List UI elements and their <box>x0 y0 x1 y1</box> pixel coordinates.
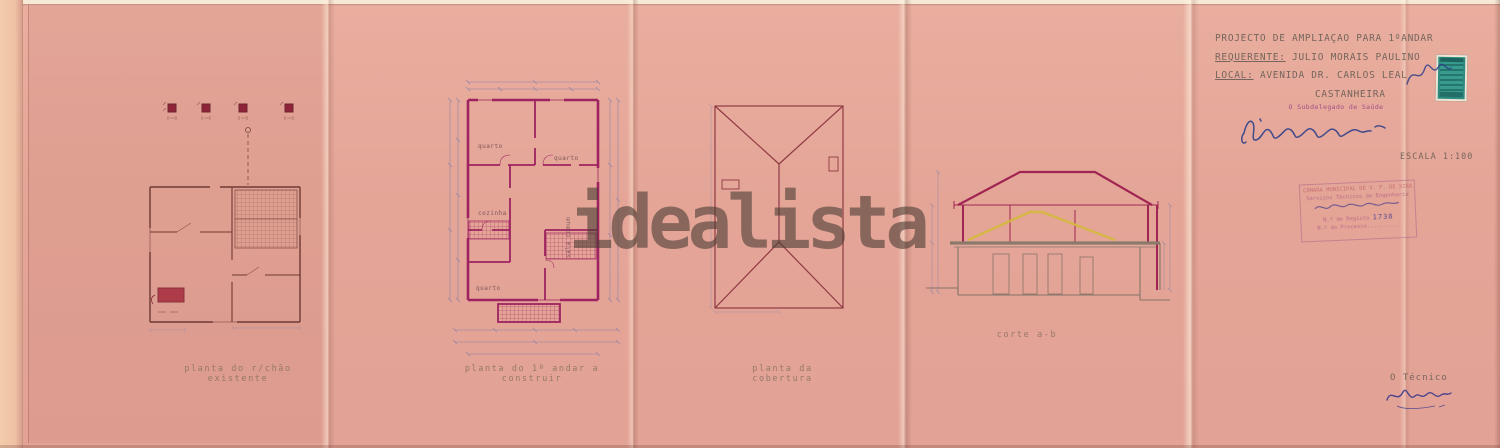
paper-left-fold-strip <box>0 0 23 448</box>
axis-line <box>246 128 251 186</box>
blueprint-sheet: quarto quarto cozinha quarto sala comum <box>0 0 1500 448</box>
caption-roof-plan: planta da cobertura <box>720 364 845 384</box>
room-label-cozinha: cozinha <box>478 210 507 217</box>
health-officer-signature <box>1238 110 1393 152</box>
room-label-quarto-3: quarto <box>476 285 501 292</box>
new-roof <box>954 172 1158 209</box>
technician-signature <box>1383 382 1458 416</box>
fiscal-stamp-signature <box>1403 56 1453 94</box>
old-roof-profile <box>968 212 1115 240</box>
ground-floor-plan-drawing <box>125 90 330 340</box>
dim-lines <box>930 170 1172 294</box>
stair-hatch-area <box>235 190 297 248</box>
room-label-quarto-2: quarto <box>554 155 579 162</box>
ground-floor <box>926 243 1170 300</box>
paper-top-edge <box>0 0 1500 4</box>
column-dim-ticks <box>163 102 293 120</box>
idealista-watermark: idealista <box>569 186 925 260</box>
scale-label: ESCALA 1:100 <box>1400 152 1495 162</box>
red-feature <box>151 288 184 312</box>
column-symbols <box>168 104 293 112</box>
section-drawing <box>918 158 1186 308</box>
floor-slab <box>950 243 1160 247</box>
project-title-line: PROJECTO DE AMPLIAÇÃO PARA 1ºANDAR <box>1215 30 1500 49</box>
caption-section: corte a-b <box>972 330 1082 340</box>
caption-ground-floor-plan: planta do r/chão existente <box>168 364 308 384</box>
municipal-stamp: CÂMARA MUNICIPAL DE V. F. DE XIRA Serviç… <box>1299 179 1417 242</box>
room-label-quarto-1: quarto <box>478 143 503 150</box>
caption-first-floor-plan: planta do 1º andar a construir <box>452 364 612 384</box>
dim-lines <box>150 326 300 332</box>
